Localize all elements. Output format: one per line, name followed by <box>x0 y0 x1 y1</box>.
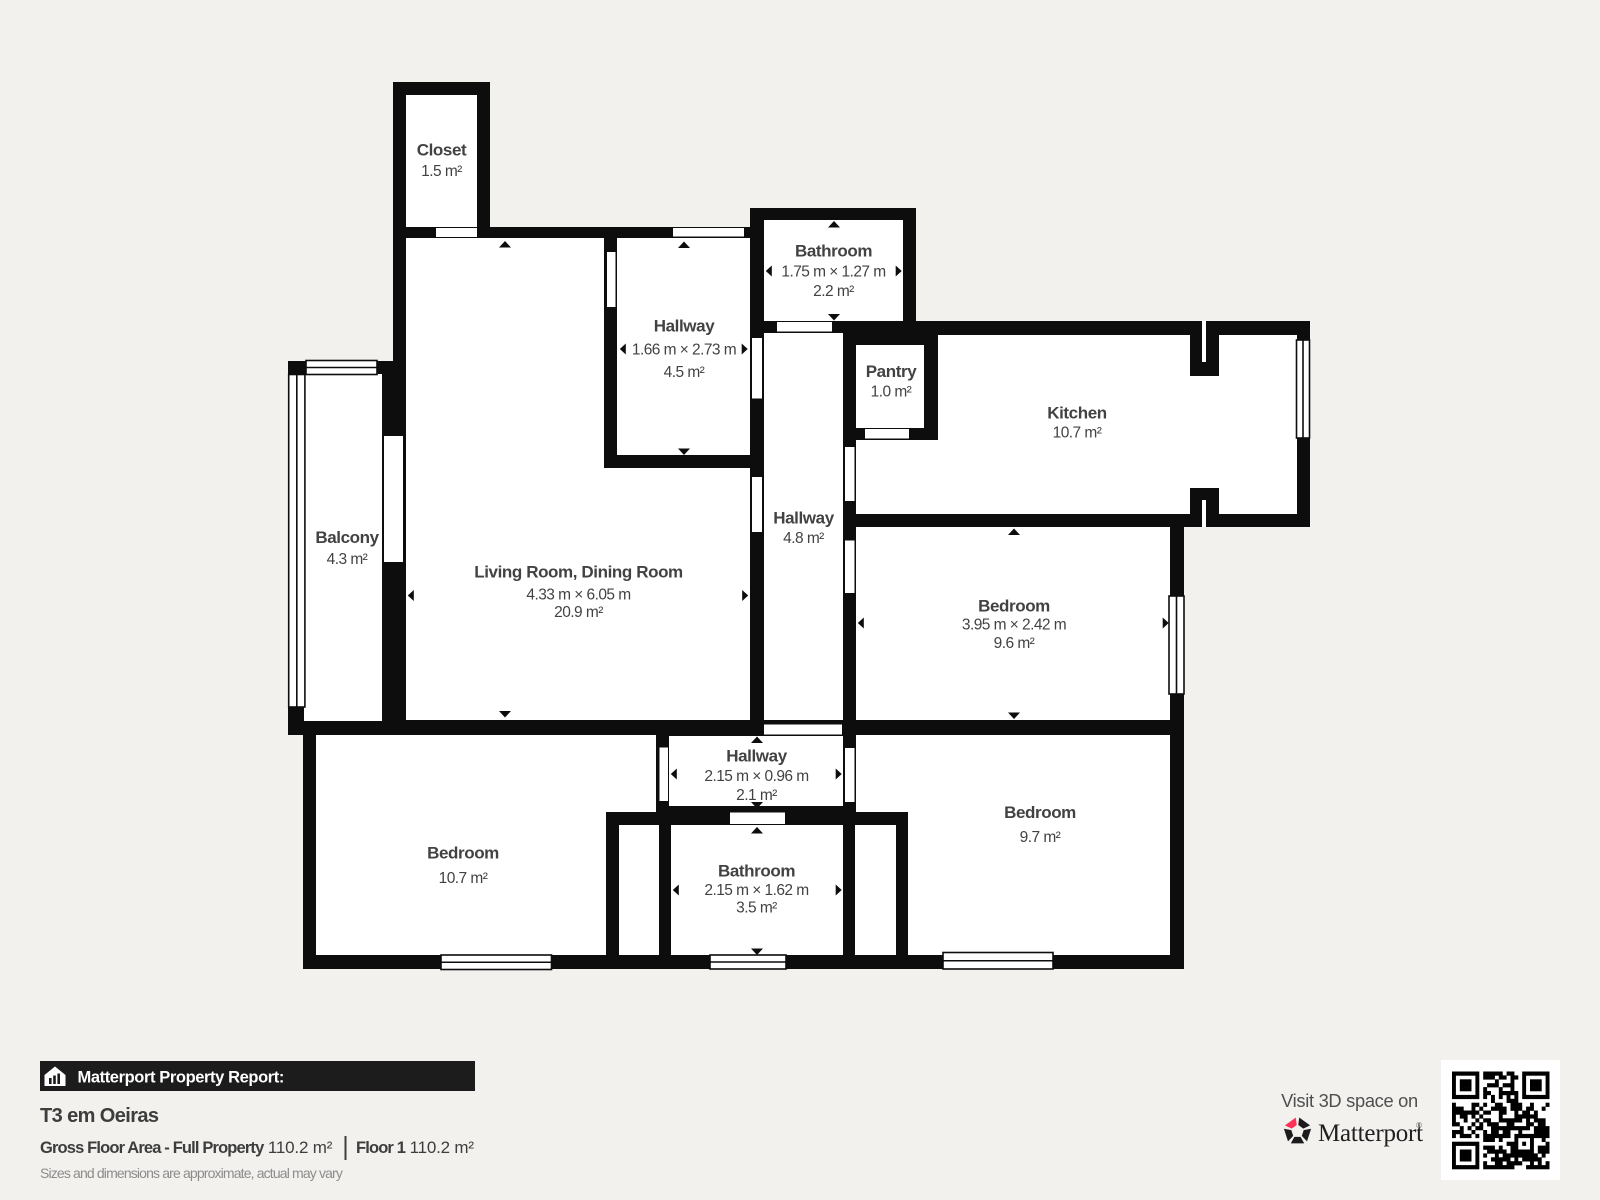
svg-text:2.15 m × 1.62 m: 2.15 m × 1.62 m <box>704 882 808 899</box>
svg-text:Closet: Closet <box>417 141 467 160</box>
svg-text:9.7 m²: 9.7 m² <box>1020 829 1061 846</box>
svg-text:10.7 m²: 10.7 m² <box>1053 425 1102 442</box>
svg-text:3.95 m × 2.42 m: 3.95 m × 2.42 m <box>962 617 1066 634</box>
svg-text:4.33 m × 6.05 m: 4.33 m × 6.05 m <box>526 587 630 604</box>
svg-text:1.75 m × 1.27 m: 1.75 m × 1.27 m <box>781 264 885 281</box>
svg-text:2.2 m²: 2.2 m² <box>813 283 854 300</box>
svg-text:9.6 m²: 9.6 m² <box>994 635 1035 652</box>
svg-text:20.9 m²: 20.9 m² <box>554 604 603 621</box>
svg-text:Bedroom: Bedroom <box>1004 803 1076 822</box>
svg-text:4.5 m²: 4.5 m² <box>664 364 705 381</box>
svg-text:T3 em Oeiras: T3 em Oeiras <box>40 1105 159 1127</box>
svg-text:Sizes and dimensions are appro: Sizes and dimensions are approximate, ac… <box>40 1165 343 1181</box>
svg-text:Matterport Property Report:: Matterport Property Report: <box>78 1069 284 1087</box>
svg-text:Bathroom: Bathroom <box>718 862 795 881</box>
svg-text:1.0 m²: 1.0 m² <box>871 384 912 401</box>
svg-text:Matterport: Matterport <box>1318 1120 1423 1147</box>
svg-text:®: ® <box>1416 1121 1422 1130</box>
svg-text:2.1 m²: 2.1 m² <box>736 787 777 804</box>
svg-text:3.5 m²: 3.5 m² <box>736 900 777 917</box>
svg-text:10.7 m²: 10.7 m² <box>439 870 488 887</box>
svg-text:4.8 m²: 4.8 m² <box>783 530 824 547</box>
svg-text:Balcony: Balcony <box>315 528 379 547</box>
svg-text:Hallway: Hallway <box>654 317 715 336</box>
svg-text:1.66 m × 2.73 m: 1.66 m × 2.73 m <box>632 342 736 359</box>
svg-text:Kitchen: Kitchen <box>1047 404 1107 423</box>
svg-text:2.15 m × 0.96 m: 2.15 m × 0.96 m <box>704 768 808 785</box>
svg-text:Visit 3D space on: Visit 3D space on <box>1281 1090 1418 1111</box>
svg-text:Floor 1 110.2 m²: Floor 1 110.2 m² <box>356 1138 474 1157</box>
svg-text:1.5 m²: 1.5 m² <box>421 163 462 180</box>
svg-text:Bedroom: Bedroom <box>978 597 1050 616</box>
svg-text:Bedroom: Bedroom <box>427 844 499 863</box>
svg-text:Living Room, Dining Room: Living Room, Dining Room <box>474 563 683 582</box>
svg-text:Bathroom: Bathroom <box>795 242 872 261</box>
svg-text:Pantry: Pantry <box>866 362 917 381</box>
svg-text:Hallway: Hallway <box>773 509 834 528</box>
svg-text:4.3 m²: 4.3 m² <box>327 551 368 568</box>
svg-text:Gross Floor Area - Full Proper: Gross Floor Area - Full Property 110.2 m… <box>40 1138 333 1157</box>
svg-text:Hallway: Hallway <box>726 747 787 766</box>
